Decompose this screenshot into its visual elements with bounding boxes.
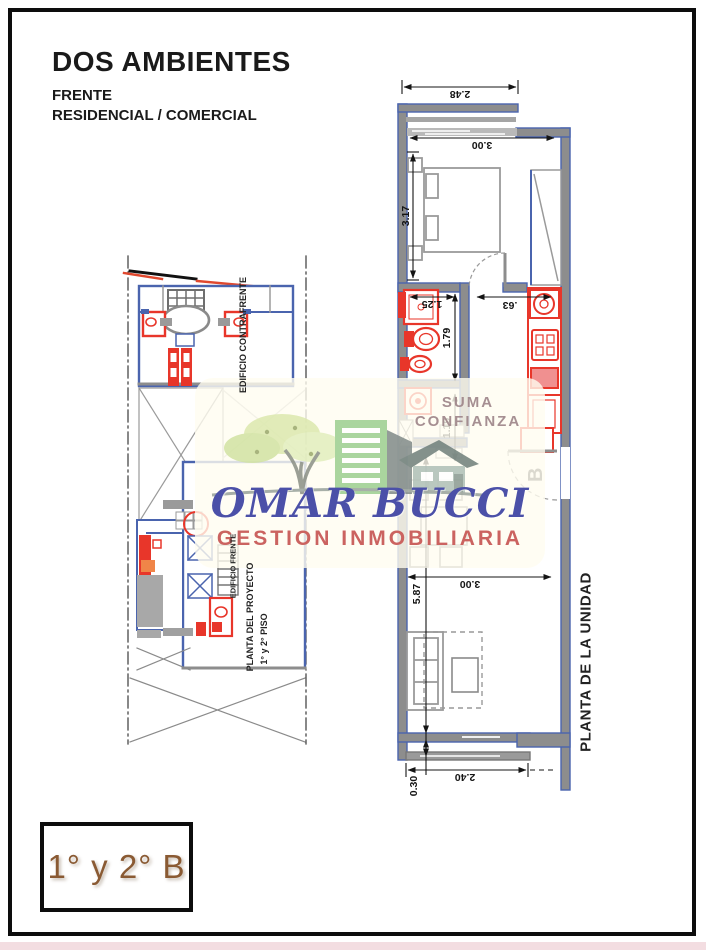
svg-text:0.30: 0.30 <box>408 776 420 797</box>
unit-badge-label: 1° y 2° B <box>47 848 185 886</box>
bedroom-door <box>469 253 505 287</box>
sofa <box>407 632 443 710</box>
page-subtitle-2: RESIDENCIAL / COMERCIAL <box>52 107 257 124</box>
caption-planta-del-proyecto: PLANTA DEL PROYECTO <box>245 563 255 672</box>
caption-planta-de-la-unidad: PLANTA DE LA UNIDAD <box>578 572 595 752</box>
caption-edificio-contrafrente: EDIFICIO CONTRAFRENTE <box>238 277 248 393</box>
unit-badge: 1° y 2° B <box>40 822 193 912</box>
svg-text:2.40: 2.40 <box>455 771 476 783</box>
svg-text:3.00: 3.00 <box>460 578 481 590</box>
tagline-line2: CONFIANZA <box>415 413 521 430</box>
caption-edificio-frente: EDIFICIO FRENTE <box>229 534 238 599</box>
svg-text:2.48: 2.48 <box>450 88 471 100</box>
watermark-brand-name: OMAR BUCCI <box>195 484 545 524</box>
caption-piso: 1° y 2° PISO <box>259 613 269 664</box>
tagline-line1: SUMA <box>442 394 494 411</box>
svg-text:.63: .63 <box>503 299 518 311</box>
svg-text:1.79: 1.79 <box>441 328 453 349</box>
watermark-brand-subtitle: GESTION INMOBILIARIA <box>195 527 545 551</box>
bed <box>408 158 500 260</box>
bottom-strip <box>0 942 706 950</box>
svg-text:1.25: 1.25 <box>422 298 443 310</box>
coffee-table <box>452 658 478 692</box>
svg-text:3.17: 3.17 <box>400 206 412 227</box>
svg-text:3.00: 3.00 <box>472 139 493 151</box>
page-title: DOS AMBIENTES <box>52 46 291 78</box>
watermark-card: SUMA CONFIANZA OMAR BUCCI GESTION INMOBI… <box>195 378 545 568</box>
svg-text:5.87: 5.87 <box>411 584 423 605</box>
watermark-tagline: SUMA CONFIANZA <box>403 394 533 432</box>
closet <box>531 170 561 285</box>
page: B <box>0 0 706 950</box>
page-subtitle-1: FRENTE <box>52 87 112 104</box>
